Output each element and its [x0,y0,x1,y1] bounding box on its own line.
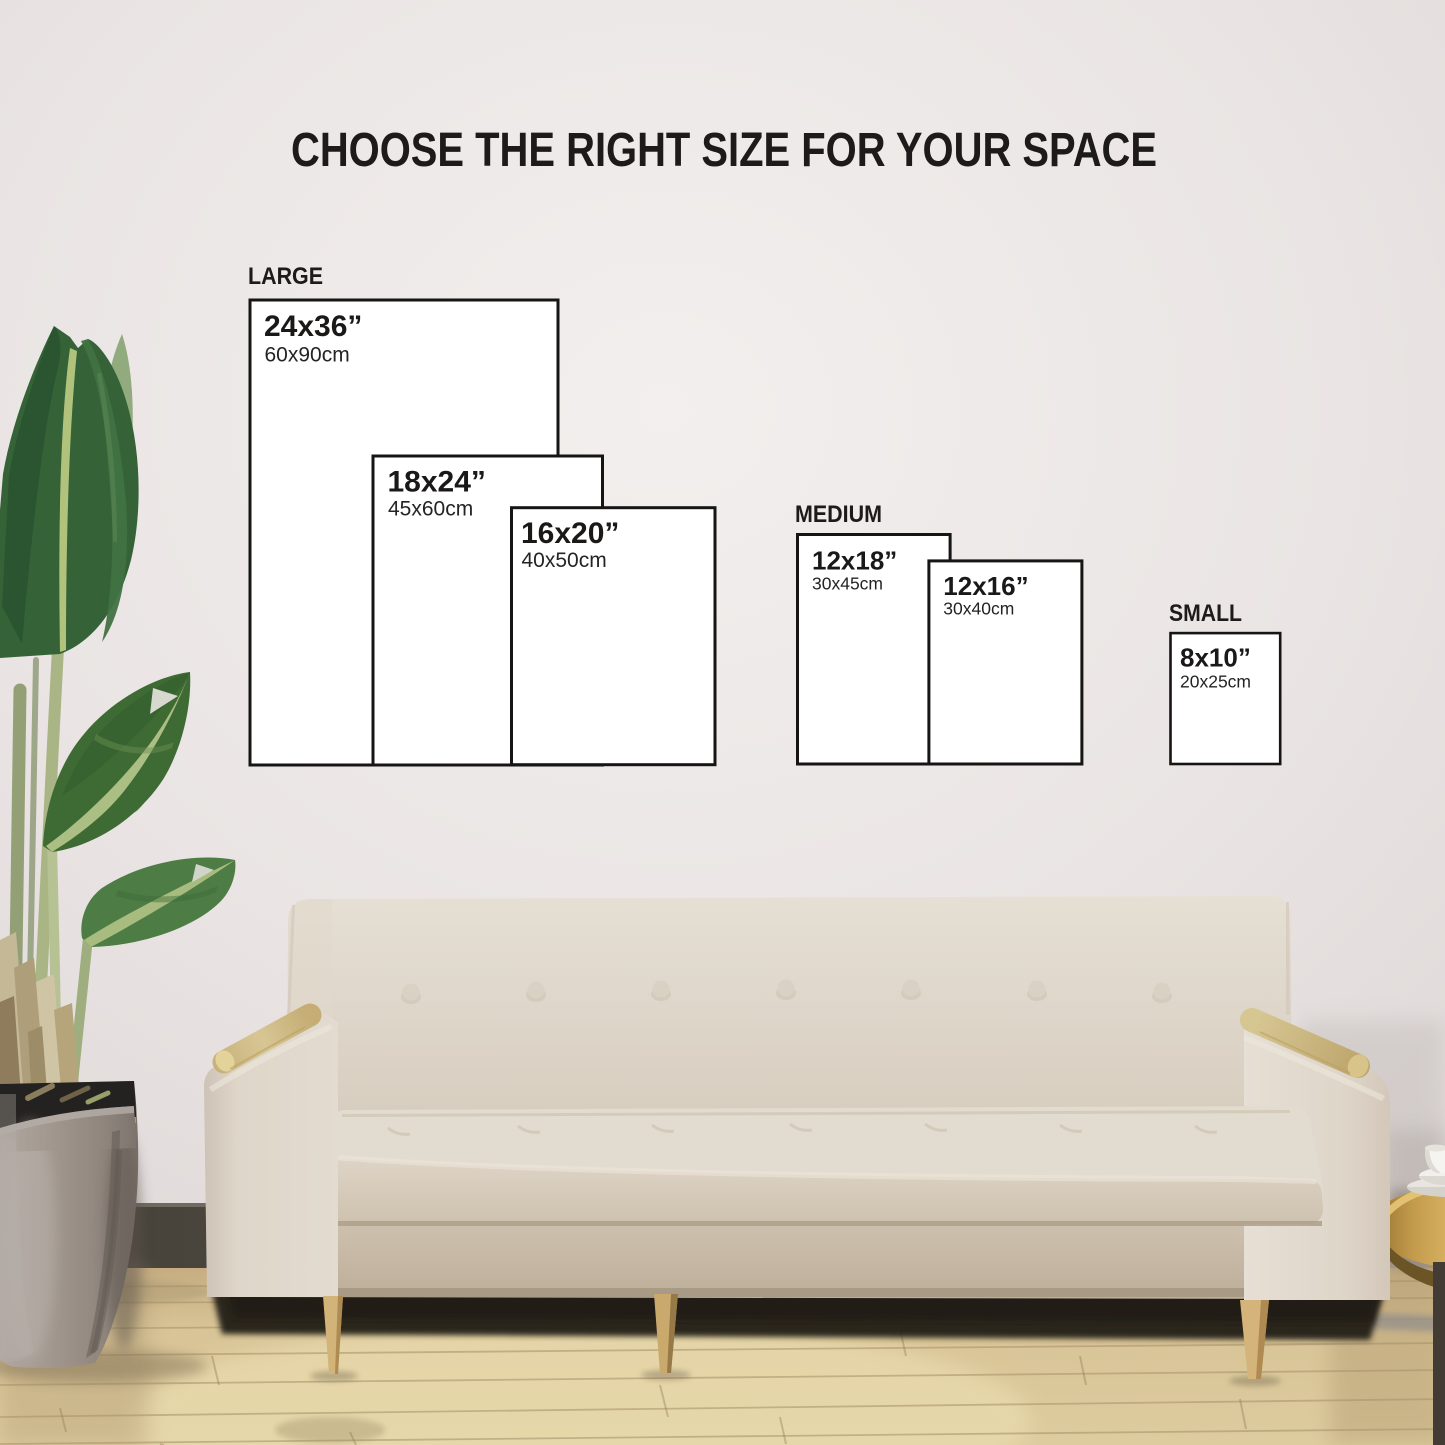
svg-text:30x40cm: 30x40cm [943,599,1014,619]
svg-text:40x50cm: 40x50cm [522,549,607,572]
svg-text:18x24”: 18x24” [388,466,486,499]
svg-text:20x25cm: 20x25cm [1180,672,1251,692]
svg-text:LARGE: LARGE [248,263,323,290]
svg-text:8x10”: 8x10” [1180,643,1251,673]
svg-text:30x45cm: 30x45cm [812,574,883,594]
svg-text:12x16”: 12x16” [943,571,1028,601]
svg-text:SMALL: SMALL [1169,600,1242,627]
svg-text:45x60cm: 45x60cm [388,498,473,521]
svg-text:24x36”: 24x36” [264,310,362,343]
svg-text:CHOOSE THE RIGHT SIZE FOR YOUR: CHOOSE THE RIGHT SIZE FOR YOUR SPACE [291,124,1157,177]
svg-text:12x18”: 12x18” [812,545,897,575]
svg-text:60x90cm: 60x90cm [265,344,350,367]
svg-text:16x20”: 16x20” [521,517,619,550]
svg-text:MEDIUM: MEDIUM [795,501,882,528]
